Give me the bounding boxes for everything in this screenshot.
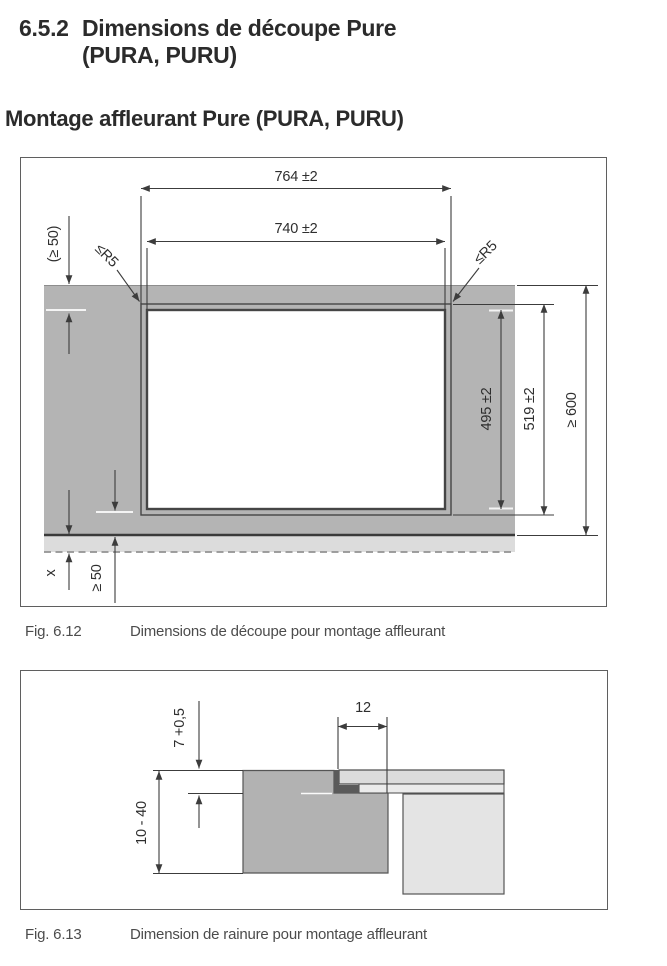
groove-drawing <box>21 671 606 908</box>
glass-lower-step <box>359 784 504 793</box>
cross-section-blocks <box>243 770 504 894</box>
section-title-line1: Dimensions de découpe Pure <box>82 15 396 42</box>
figure-caption-text: Dimensions de découpe pour montage affle… <box>130 623 445 640</box>
dim-groove-depth: 7 +0,5 <box>173 708 188 748</box>
dim-front-gap: x <box>44 569 59 576</box>
appliance-body <box>403 794 504 894</box>
dim-top-edge-min: (≥ 50) <box>47 226 62 263</box>
figure-caption-612: Fig. 6.12 Dimensions de découpe pour mon… <box>0 623 667 643</box>
section-number: 6.5.2 <box>19 15 69 42</box>
manual-page: 6.5.2 Dimensions de découpe Pure (PURA, … <box>0 0 667 966</box>
figure-caption-text: Dimension de rainure pour montage affleu… <box>130 926 427 943</box>
dim-outer-height: 519 ±2 <box>523 387 538 430</box>
figure-number: Fig. 6.13 <box>25 926 82 943</box>
cutout-opening <box>147 310 445 509</box>
dim-outer-width: 764 ±2 <box>274 170 317 185</box>
dim-inner-width: 740 ±2 <box>274 222 317 237</box>
figure-cutout-dimensions: 764 ±2 740 ±2 (≥ 50) ≤R5 ≤R5 495 ±2 519 … <box>20 157 607 607</box>
subsection-title: Montage affleurant Pure (PURA, PURU) <box>5 106 404 132</box>
figure-number: Fig. 6.12 <box>25 623 82 640</box>
figure-caption-613: Fig. 6.13 Dimension de rainure pour mont… <box>0 926 667 946</box>
recess-and-cutout <box>141 304 451 515</box>
dim-worktop-thickness: 10 - 40 <box>135 801 150 845</box>
dim-inner-height: 495 ±2 <box>480 387 495 430</box>
dim-bottom-edge-min: ≥ 50 <box>90 564 105 591</box>
dim-groove-width: 12 <box>355 701 371 716</box>
figure-groove-dimension: 7 +0,5 10 - 40 12 <box>20 670 608 910</box>
glass-panel <box>339 770 504 784</box>
dim-worktop-depth: ≥ 600 <box>565 392 580 427</box>
section-title-line2: (PURA, PURU) <box>82 42 237 69</box>
